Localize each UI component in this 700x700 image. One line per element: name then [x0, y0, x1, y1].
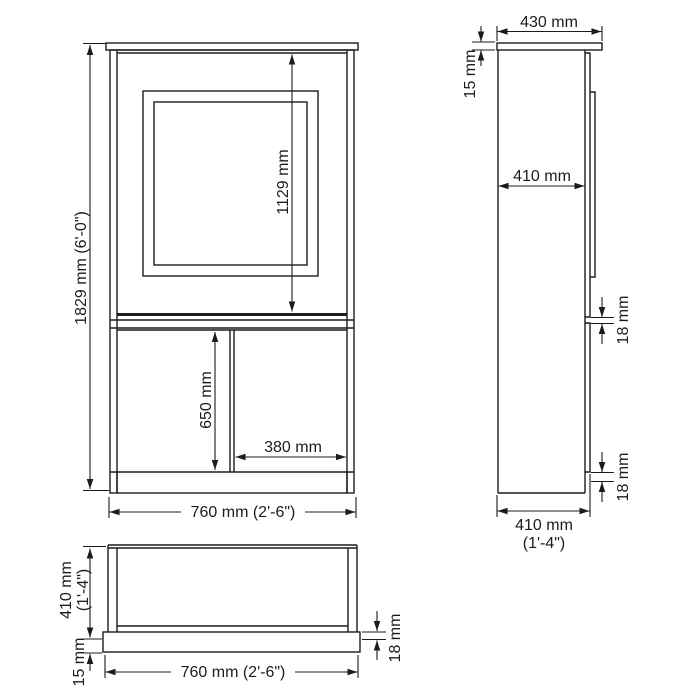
dim-plan-front-overhang-label: 15 mm — [71, 638, 88, 687]
dim-plan-panel-thickness: 18 mm — [362, 611, 404, 662]
front-view-outline — [106, 43, 358, 493]
dim-side-top-width-label: 430 mm — [520, 14, 578, 31]
dim-side-depth-imperial-label: (1'-4") — [523, 535, 566, 552]
door-raised-panel-side — [590, 92, 595, 277]
dim-lower-door-height: 650 mm — [198, 332, 215, 470]
dim-front-overall-height: 1829 mm (6'-0") — [73, 44, 109, 491]
dim-side-inner-depth-label: 410 mm — [513, 168, 571, 185]
dim-plan-width: 760 mm (2'-6") — [105, 655, 358, 681]
dim-plan-depth: 410 mm (1'-4") — [58, 547, 106, 640]
dim-side-bottom-thickness: 18 mm — [591, 452, 632, 502]
top-panel-side — [497, 43, 602, 50]
dim-side-bottom-thickness-label: 18 mm — [615, 453, 632, 502]
technical-drawing-canvas: 1829 mm (6'-0") 1129 mm 650 mm 380 mm 76… — [0, 0, 700, 700]
dim-lower-door-width: 380 mm — [236, 439, 347, 457]
dim-lower-door-width-label: 380 mm — [264, 439, 322, 456]
side-view-outline — [497, 43, 602, 493]
dim-side-shelf-thickness-label: 18 mm — [615, 296, 632, 345]
front-view: 1829 mm (6'-0") 1129 mm 650 mm 380 mm 76… — [73, 43, 358, 521]
dim-upper-door-height-label: 1129 mm — [275, 149, 292, 215]
dim-front-overall-height-label: 1829 mm (6'-0") — [73, 211, 90, 325]
dim-side-shelf-thickness: 18 mm — [591, 296, 632, 345]
dim-side-inner-depth: 410 mm — [499, 168, 585, 186]
dim-upper-door-height: 1129 mm — [275, 55, 292, 312]
plan-view: 410 mm (1'-4") 15 mm 760 mm (2'-6") 18 m… — [58, 545, 404, 686]
dim-plan-panel-thickness-label: 18 mm — [387, 614, 404, 663]
upper-door-side — [586, 53, 591, 317]
top-panel — [106, 43, 358, 50]
dim-side-top-thickness-label: 15 mm — [462, 50, 479, 99]
lower-door-side — [586, 323, 591, 472]
front-band — [103, 632, 360, 652]
cabinet-dimension-drawing: 1829 mm (6'-0") 1129 mm 650 mm 380 mm 76… — [0, 0, 700, 700]
dim-side-depth-label: 410 mm — [515, 517, 573, 534]
dim-front-overall-width: 760 mm (2'-6") — [109, 497, 356, 521]
side-view: 430 mm 15 mm 410 mm 18 mm 18 mm — [462, 14, 632, 552]
dim-side-top-thickness: 15 mm — [462, 26, 495, 98]
dim-side-depth: 410 mm (1'-4") — [497, 474, 590, 552]
dim-plan-depth-imperial-label: (1'-4") — [75, 569, 92, 612]
dim-plan-width-label: 760 mm (2'-6") — [181, 664, 286, 681]
dim-lower-door-height-label: 650 mm — [198, 371, 215, 429]
dim-plan-depth-label: 410 mm — [58, 561, 75, 619]
dim-side-top-width: 430 mm — [497, 14, 602, 41]
dim-plan-front-overhang: 15 mm — [71, 638, 102, 687]
plan-view-outline — [103, 545, 360, 652]
dim-front-overall-width-label: 760 mm (2'-6") — [191, 504, 296, 521]
